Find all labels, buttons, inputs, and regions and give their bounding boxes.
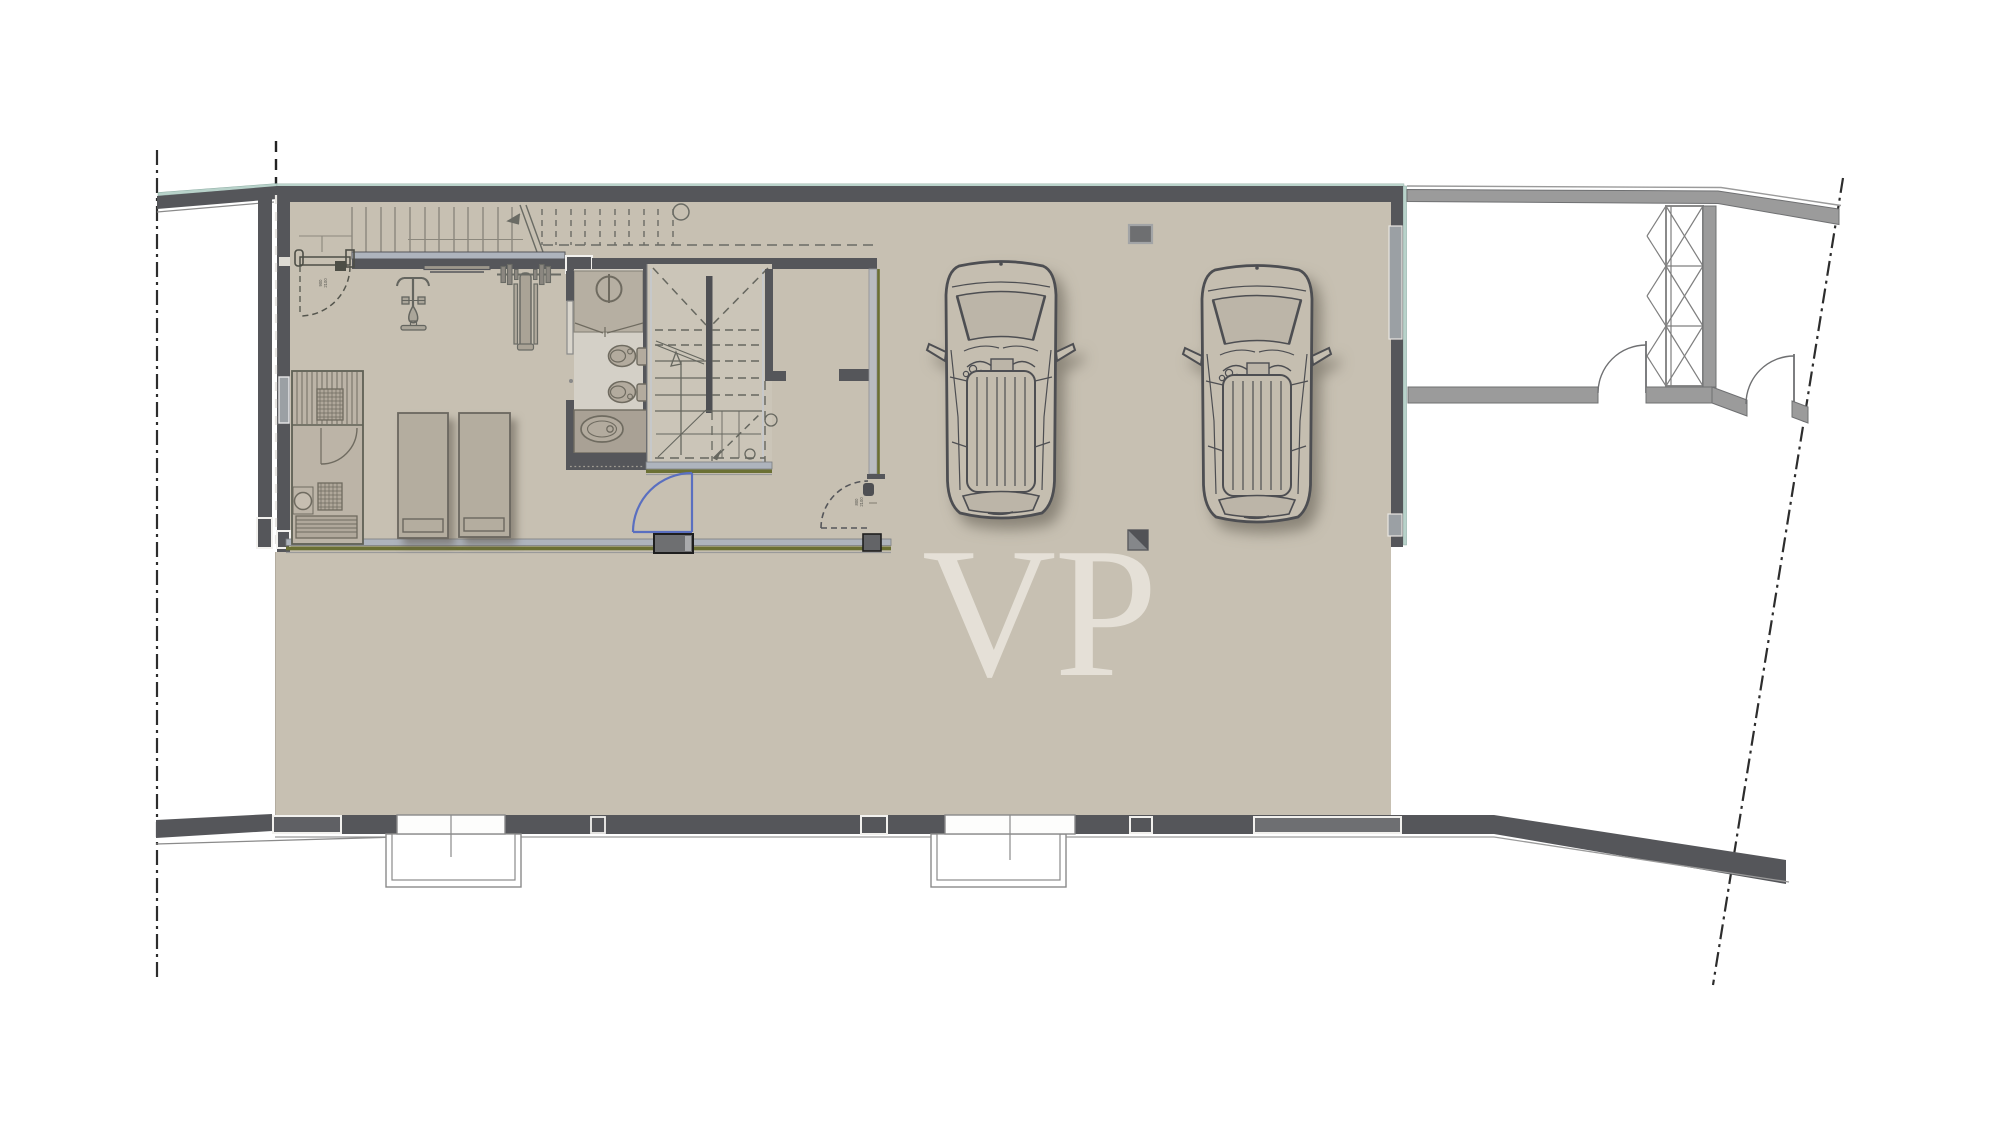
svg-text:VP: VP xyxy=(922,510,1156,716)
svg-text:2100: 2100 xyxy=(859,497,864,507)
svg-text:2100: 2100 xyxy=(323,278,328,288)
